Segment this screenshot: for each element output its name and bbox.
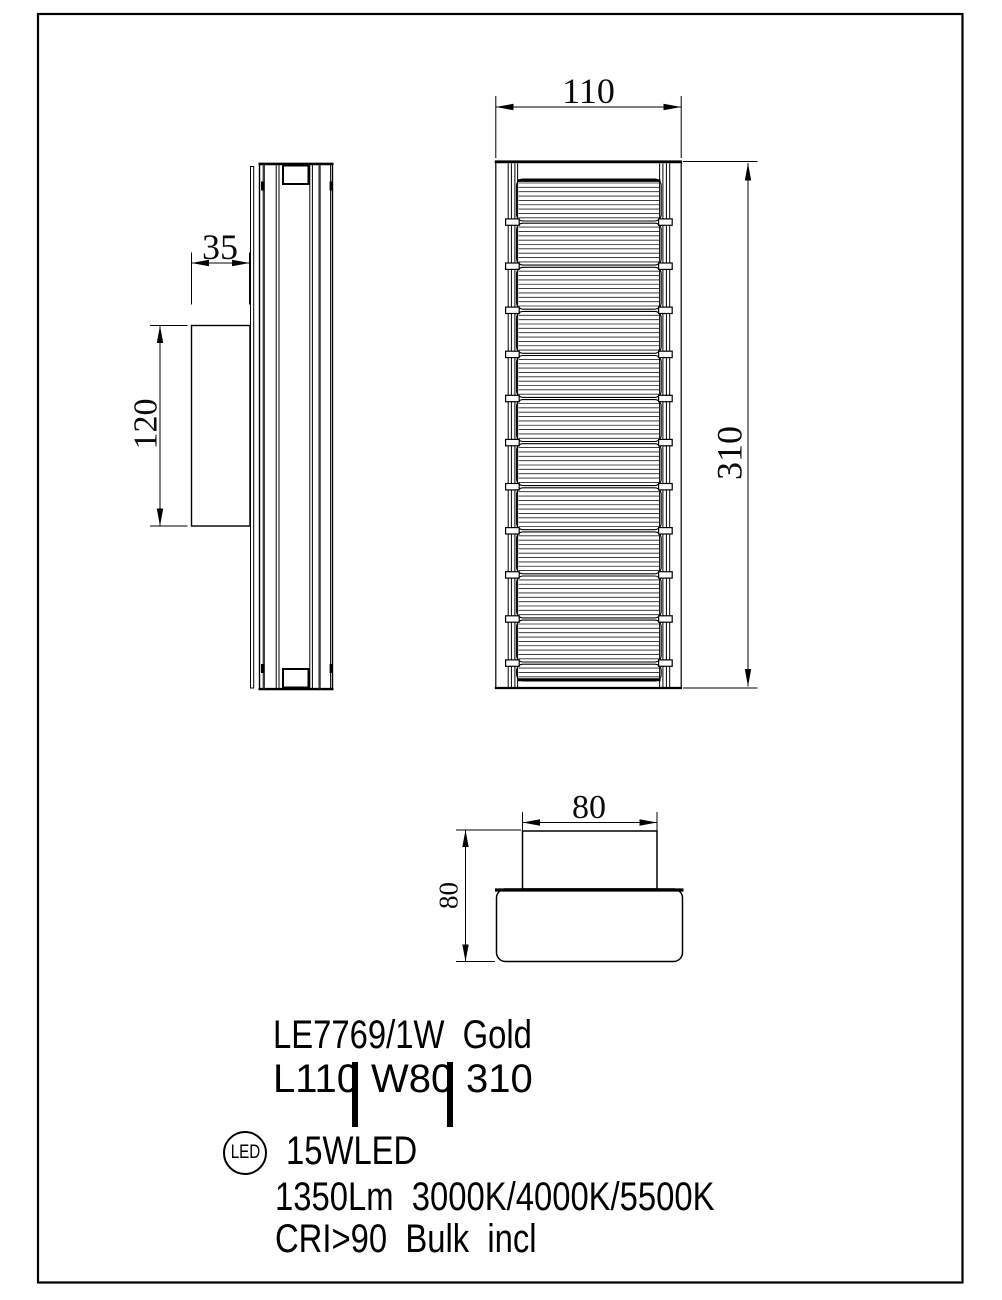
- dim-front-height-label: 310: [710, 426, 750, 480]
- side-backplate: [251, 167, 254, 689]
- led-badge-icon: LED: [223, 1131, 267, 1175]
- side-body: [260, 164, 333, 690]
- side-bracket: [192, 326, 251, 527]
- dim-top-depth: 80: [434, 830, 522, 962]
- dim-top-depth-label: 80: [434, 882, 464, 909]
- model-line: LE7769/1W Gold: [273, 1014, 589, 1056]
- top-bracket: [523, 831, 658, 889]
- led-badge-text: LED: [230, 1142, 260, 1164]
- dim-side-depth: 35: [192, 227, 250, 305]
- top-body: [497, 889, 683, 962]
- dim-top-width-label: 80: [572, 789, 606, 826]
- dim-w-text: W80: [371, 1058, 453, 1100]
- dim-front-height: 310: [683, 162, 758, 689]
- separator-bar-2: [447, 1062, 453, 1127]
- power-line: 15WLED: [286, 1130, 446, 1172]
- dim-front-width: 110: [496, 71, 681, 158]
- separator-bar-1: [352, 1062, 358, 1127]
- top-view: [495, 831, 684, 962]
- front-glass: [506, 179, 673, 681]
- front-view: [495, 161, 682, 688]
- cri-line: CRI>90 Bulk incl: [275, 1218, 594, 1260]
- side-top-cap: [283, 166, 309, 185]
- dim-side-depth-label: 35: [202, 227, 238, 267]
- lumens-line: 1350Lm 3000K/4000K/5500K: [275, 1176, 811, 1218]
- dim-h-text: 310: [466, 1058, 533, 1100]
- dim-side-height: 120: [128, 326, 188, 527]
- drawing-sheet: 35 120: [0, 0, 1002, 1300]
- dim-l-text: L110: [273, 1058, 359, 1100]
- dim-side-height-label: 120: [128, 399, 165, 450]
- technical-drawing: 35 120: [0, 0, 1002, 1300]
- side-bottom-cap: [283, 669, 309, 688]
- dim-front-width-label: 110: [562, 71, 615, 111]
- dim-top-width: 80: [523, 789, 658, 831]
